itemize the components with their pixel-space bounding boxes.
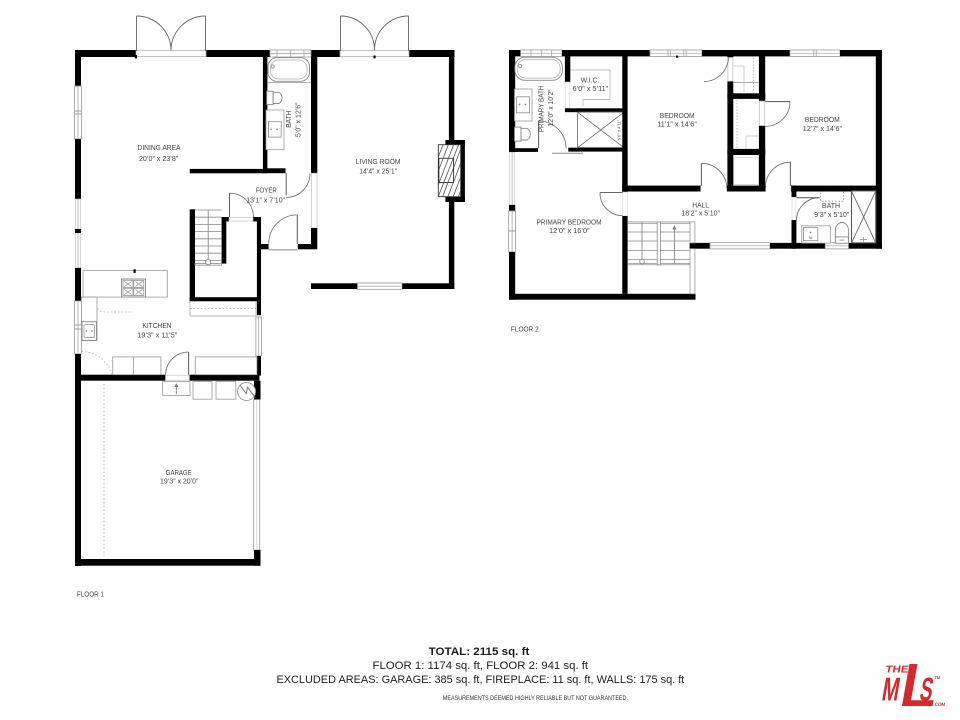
svg-text:TOTAL: 2115 sq. ft: TOTAL: 2115 sq. ft [429, 646, 530, 658]
svg-text:PRIMARY BEDROOM: PRIMARY BEDROOM [536, 217, 601, 226]
svg-text:BATH: BATH [284, 111, 293, 128]
svg-text:5’0” x 12’6”: 5’0” x 12’6” [294, 102, 303, 137]
svg-text:.COM: .COM [933, 702, 946, 708]
svg-text:6’0” x 5’11”: 6’0” x 5’11” [573, 84, 609, 93]
svg-text:18’2” x 5’10”: 18’2” x 5’10” [681, 209, 720, 218]
svg-text:BEDROOM: BEDROOM [805, 115, 840, 124]
svg-text:MEASUREMENTS DEEMED HIGHLY REL: MEASUREMENTS DEEMED HIGHLY RELIABLE BUT … [443, 695, 628, 702]
svg-text:12’7” x 14’6”: 12’7” x 14’6” [803, 124, 843, 133]
svg-text:6’6” x 4’11”: 6’6” x 4’11” [617, 119, 622, 140]
svg-text:GARAGE: GARAGE [166, 468, 192, 477]
svg-text:12’0” x 16’0”: 12’0” x 16’0” [549, 226, 590, 235]
svg-text:11’1” x 14’6”: 11’1” x 14’6” [657, 120, 697, 129]
svg-text:12’0” x 10’2”: 12’0” x 10’2” [546, 89, 555, 126]
svg-text:14’4” x 25’1”: 14’4” x 25’1” [359, 166, 397, 175]
svg-text:FOYER: FOYER [256, 185, 277, 194]
svg-text:LIVING ROOM: LIVING ROOM [356, 157, 401, 166]
svg-text:13’1” x 7’10”: 13’1” x 7’10” [246, 195, 285, 204]
svg-text:EXCLUDED AREAS: GARAGE: 385 sq: EXCLUDED AREAS: GARAGE: 385 sq. ft, FIRE… [276, 674, 684, 686]
svg-text:DINING AREA: DINING AREA [138, 143, 182, 152]
svg-text:19’3” x 20’0”: 19’3” x 20’0” [160, 477, 199, 486]
svg-text:BATH: BATH [822, 201, 840, 210]
svg-text:FLOOR 2: FLOOR 2 [511, 325, 539, 334]
svg-text:PRIMARY BATH: PRIMARY BATH [536, 86, 545, 132]
svg-text:KITCHEN: KITCHEN [142, 321, 171, 330]
svg-text:19’3” x 11’5”: 19’3” x 11’5” [137, 331, 178, 340]
svg-text:9’3” x 5’10”: 9’3” x 5’10” [814, 210, 850, 219]
svg-text:20’0” x 23’8”: 20’0” x 23’8” [139, 154, 179, 163]
svg-text:FLOOR 1: 1174 sq. ft, FLOOR 2:: FLOOR 1: 1174 sq. ft, FLOOR 2: 941 sq. f… [373, 660, 589, 672]
svg-text:FLOOR 1: FLOOR 1 [77, 589, 104, 598]
